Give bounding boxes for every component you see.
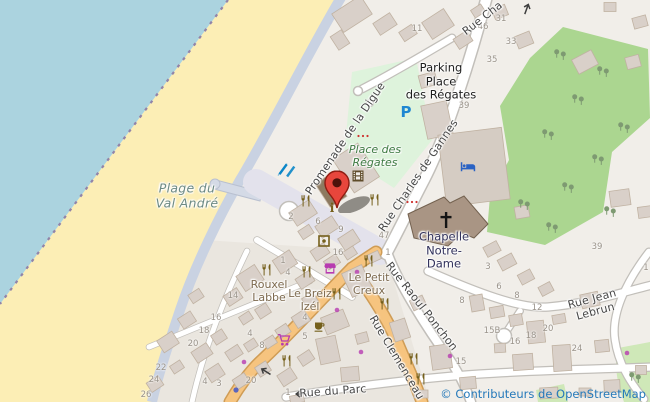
location-marker[interactable] [321,169,381,217]
attribution-link[interactable]: © Contributeurs de OpenStreetMap [440,387,646,401]
map-canvas[interactable]: Promenade de la Digue Rue Charles de Gan… [0,0,650,402]
pier-end [210,179,220,189]
